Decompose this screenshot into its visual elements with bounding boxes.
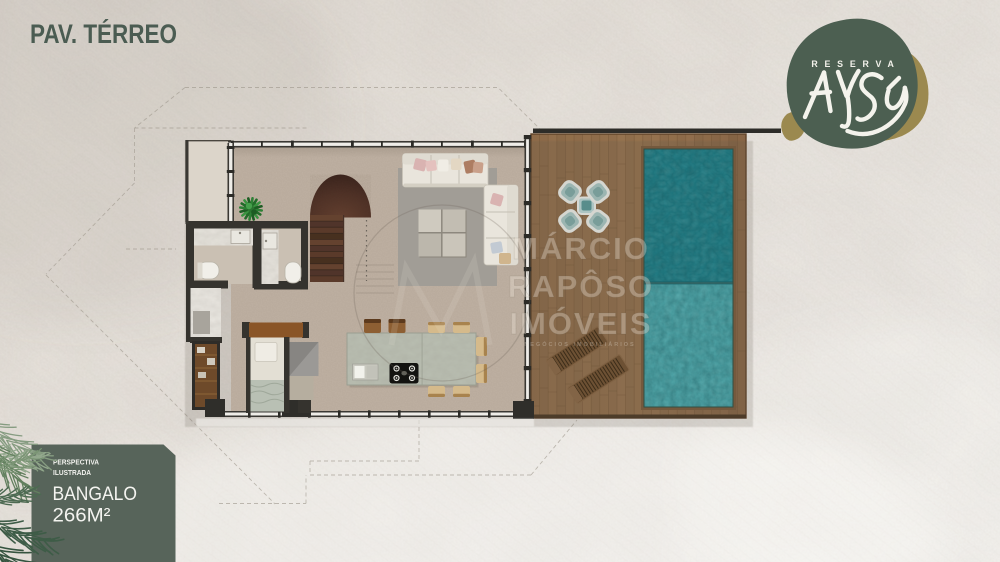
svg-text:RESERVA: RESERVA [811, 59, 900, 69]
svg-text:MÁRCIO: MÁRCIO [512, 231, 650, 266]
svg-text:ILUSTRADA: ILUSTRADA [53, 468, 91, 477]
svg-text:IMÓVEIS: IMÓVEIS [509, 305, 652, 341]
svg-text:PAV. TÉRREO: PAV. TÉRREO [30, 19, 177, 49]
svg-text:PERSPECTIVA: PERSPECTIVA [53, 458, 99, 467]
svg-text:266M²: 266M² [53, 506, 112, 527]
svg-text:RAPÔSO: RAPÔSO [508, 268, 654, 304]
svg-text:NEGÓCIOS IMOBILIÁRIOS: NEGÓCIOS IMOBILIÁRIOS [524, 340, 635, 348]
svg-text:BANGALO: BANGALO [53, 484, 138, 505]
